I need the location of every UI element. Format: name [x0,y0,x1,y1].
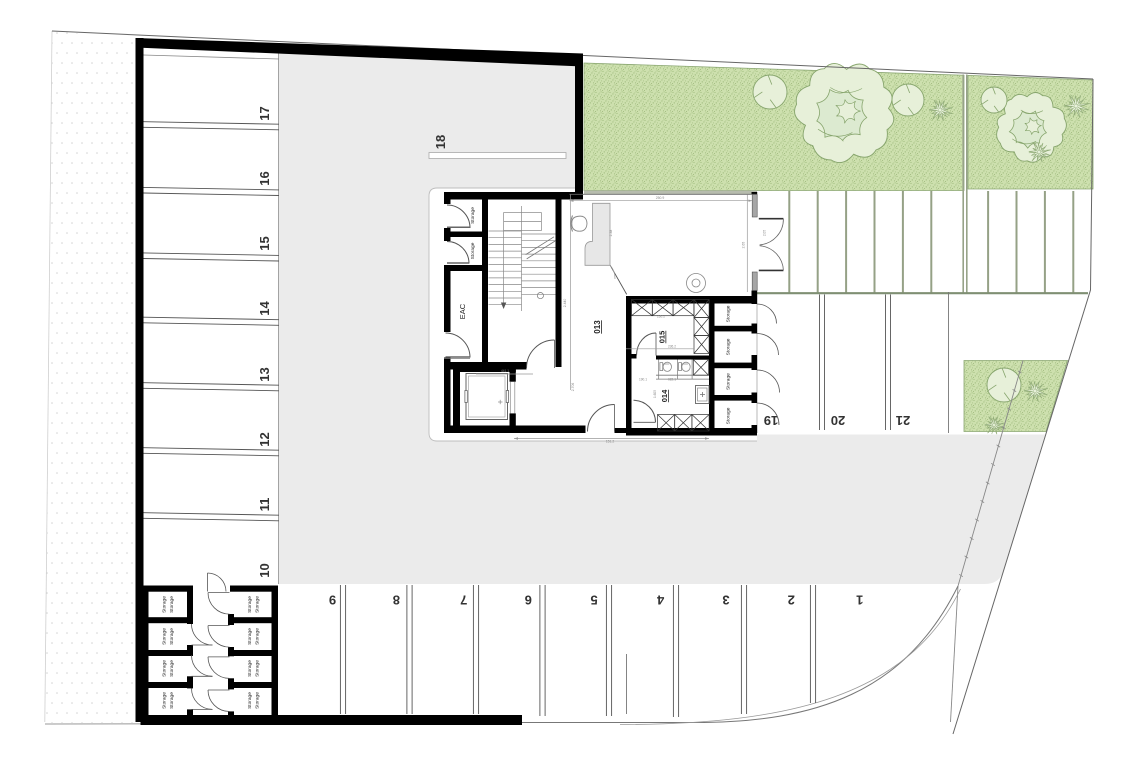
svg-text:1.605: 1.605 [653,390,657,398]
svg-text:2.440: 2.440 [563,299,567,308]
svg-text:2: 2 [788,593,795,608]
svg-text:441.1: 441.1 [501,369,509,373]
svg-text:4: 4 [656,593,664,608]
svg-text:Storage: Storage [162,660,168,677]
svg-text:2.05: 2.05 [763,230,767,236]
svg-text:190.1: 190.1 [639,377,647,381]
svg-text:10: 10 [257,563,272,577]
svg-text:022.1: 022.1 [668,377,676,381]
svg-text:Storage: Storage [247,692,253,709]
svg-text:Storage: Storage [254,628,260,645]
svg-text:16: 16 [257,171,272,185]
svg-text:Storage: Storage [247,628,253,645]
svg-text:2.65: 2.65 [742,242,746,249]
svg-text:7: 7 [460,593,467,608]
svg-text:230.2: 230.2 [657,314,665,318]
svg-text:21: 21 [896,413,910,428]
svg-text:2.706: 2.706 [571,383,575,392]
svg-text:11: 11 [257,498,272,512]
svg-text:9: 9 [329,593,336,608]
svg-text:Storage: Storage [254,660,260,677]
svg-text:1: 1 [856,593,863,608]
svg-text:Storage: Storage [254,692,260,709]
svg-text:151.2: 151.2 [606,440,615,444]
svg-text:Storage: Storage [162,596,168,613]
svg-text:8: 8 [393,593,400,608]
svg-text:Storage: Storage [726,338,732,355]
svg-text:250.9: 250.9 [656,196,665,200]
svg-text:013: 013 [593,320,602,334]
svg-text:Storage: Storage [247,596,253,613]
svg-text:6: 6 [525,593,532,608]
svg-text:Storage: Storage [470,207,476,224]
svg-text:236.2: 236.2 [668,345,676,349]
svg-text:Storage: Storage [470,242,476,259]
svg-text:Storage: Storage [162,692,168,709]
svg-text:18: 18 [433,135,448,149]
svg-text:Storage: Storage [169,596,175,613]
svg-text:Storage: Storage [247,660,253,677]
svg-text:Storage: Storage [726,407,732,424]
svg-text:15: 15 [257,236,272,250]
svg-text:014: 014 [660,389,669,402]
svg-text:Storage: Storage [169,660,175,677]
svg-text:EAC: EAC [458,303,467,319]
svg-text:3: 3 [722,593,729,608]
svg-text:14: 14 [257,301,272,316]
svg-text:Storage: Storage [254,596,260,613]
svg-text:2.38: 2.38 [609,230,613,237]
svg-text:015: 015 [658,331,667,344]
svg-text:Storage: Storage [726,373,732,390]
svg-text:Storage: Storage [726,305,732,322]
svg-text:Storage: Storage [169,692,175,709]
svg-text:19: 19 [764,413,778,428]
svg-text:Storage: Storage [169,628,175,645]
svg-text:20: 20 [831,413,845,428]
svg-text:13: 13 [257,367,272,381]
svg-text:12: 12 [257,432,272,446]
svg-text:17: 17 [257,106,272,120]
svg-text:Storage: Storage [162,628,168,645]
svg-text:5: 5 [590,593,597,608]
